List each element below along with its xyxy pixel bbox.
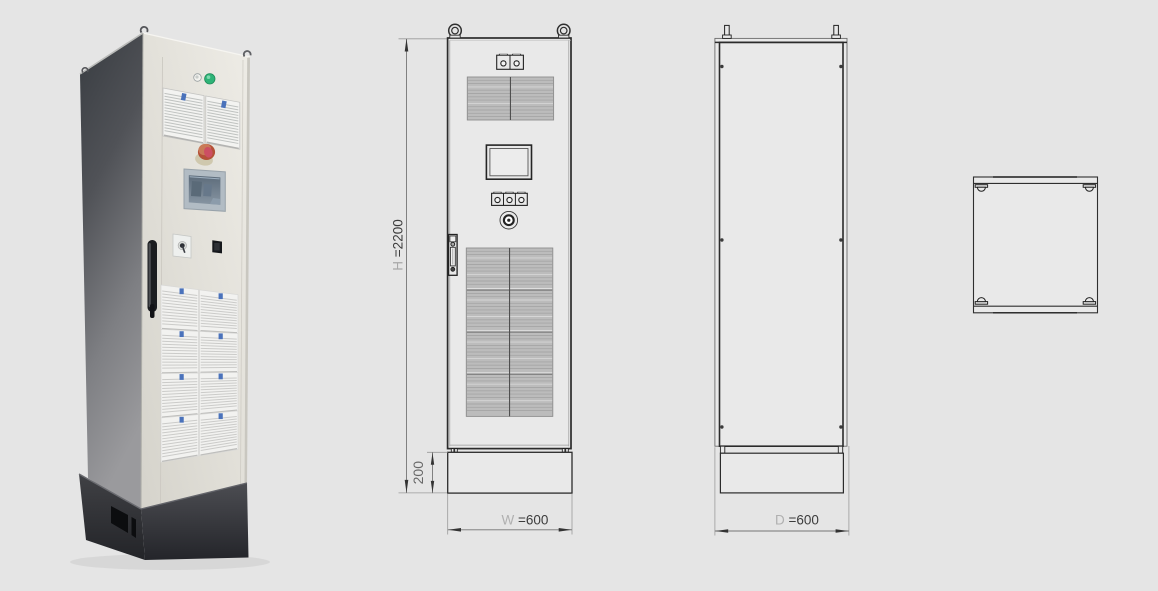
svg-text:D =600: D =600: [775, 513, 819, 528]
svg-text:W =600: W =600: [502, 513, 549, 528]
svg-text:200: 200: [410, 461, 426, 485]
svg-text:H =2200: H =2200: [391, 219, 406, 270]
